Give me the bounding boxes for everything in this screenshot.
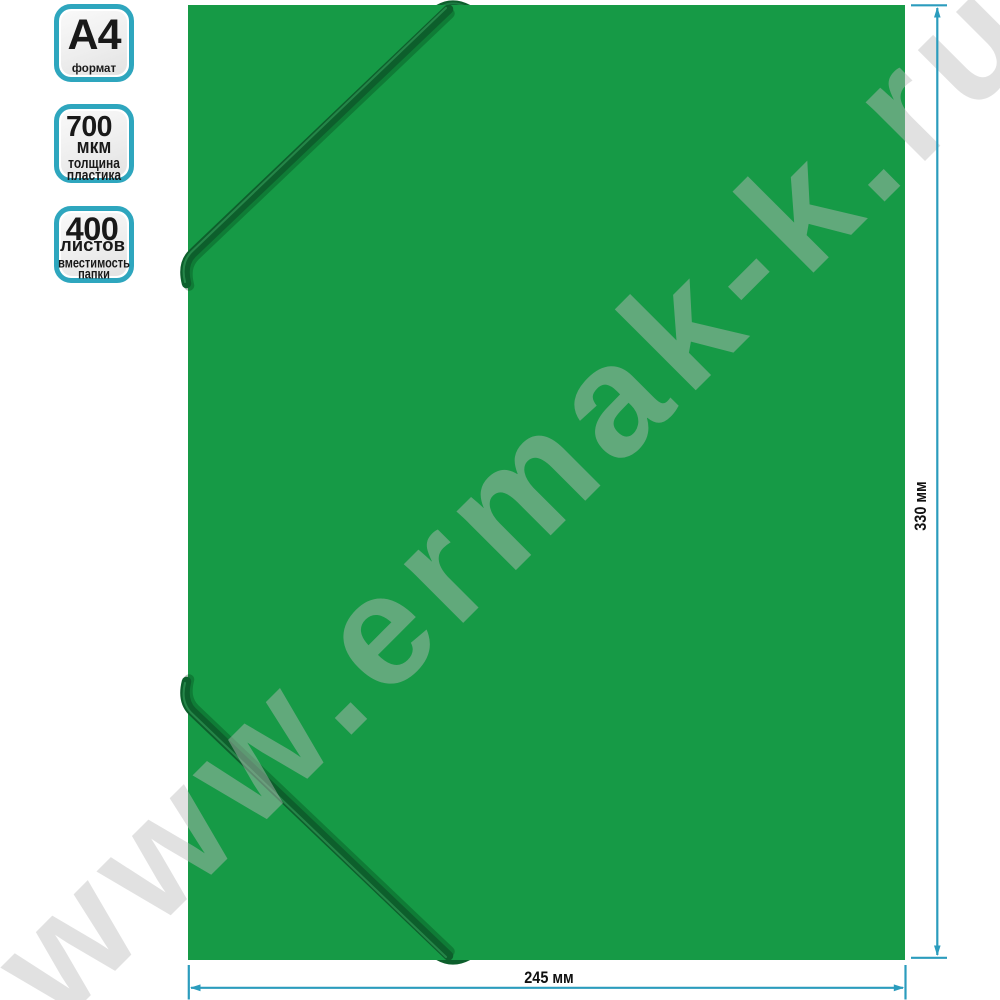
svg-text:330 мм: 330 мм <box>912 481 930 530</box>
svg-text:245 мм: 245 мм <box>524 969 573 987</box>
